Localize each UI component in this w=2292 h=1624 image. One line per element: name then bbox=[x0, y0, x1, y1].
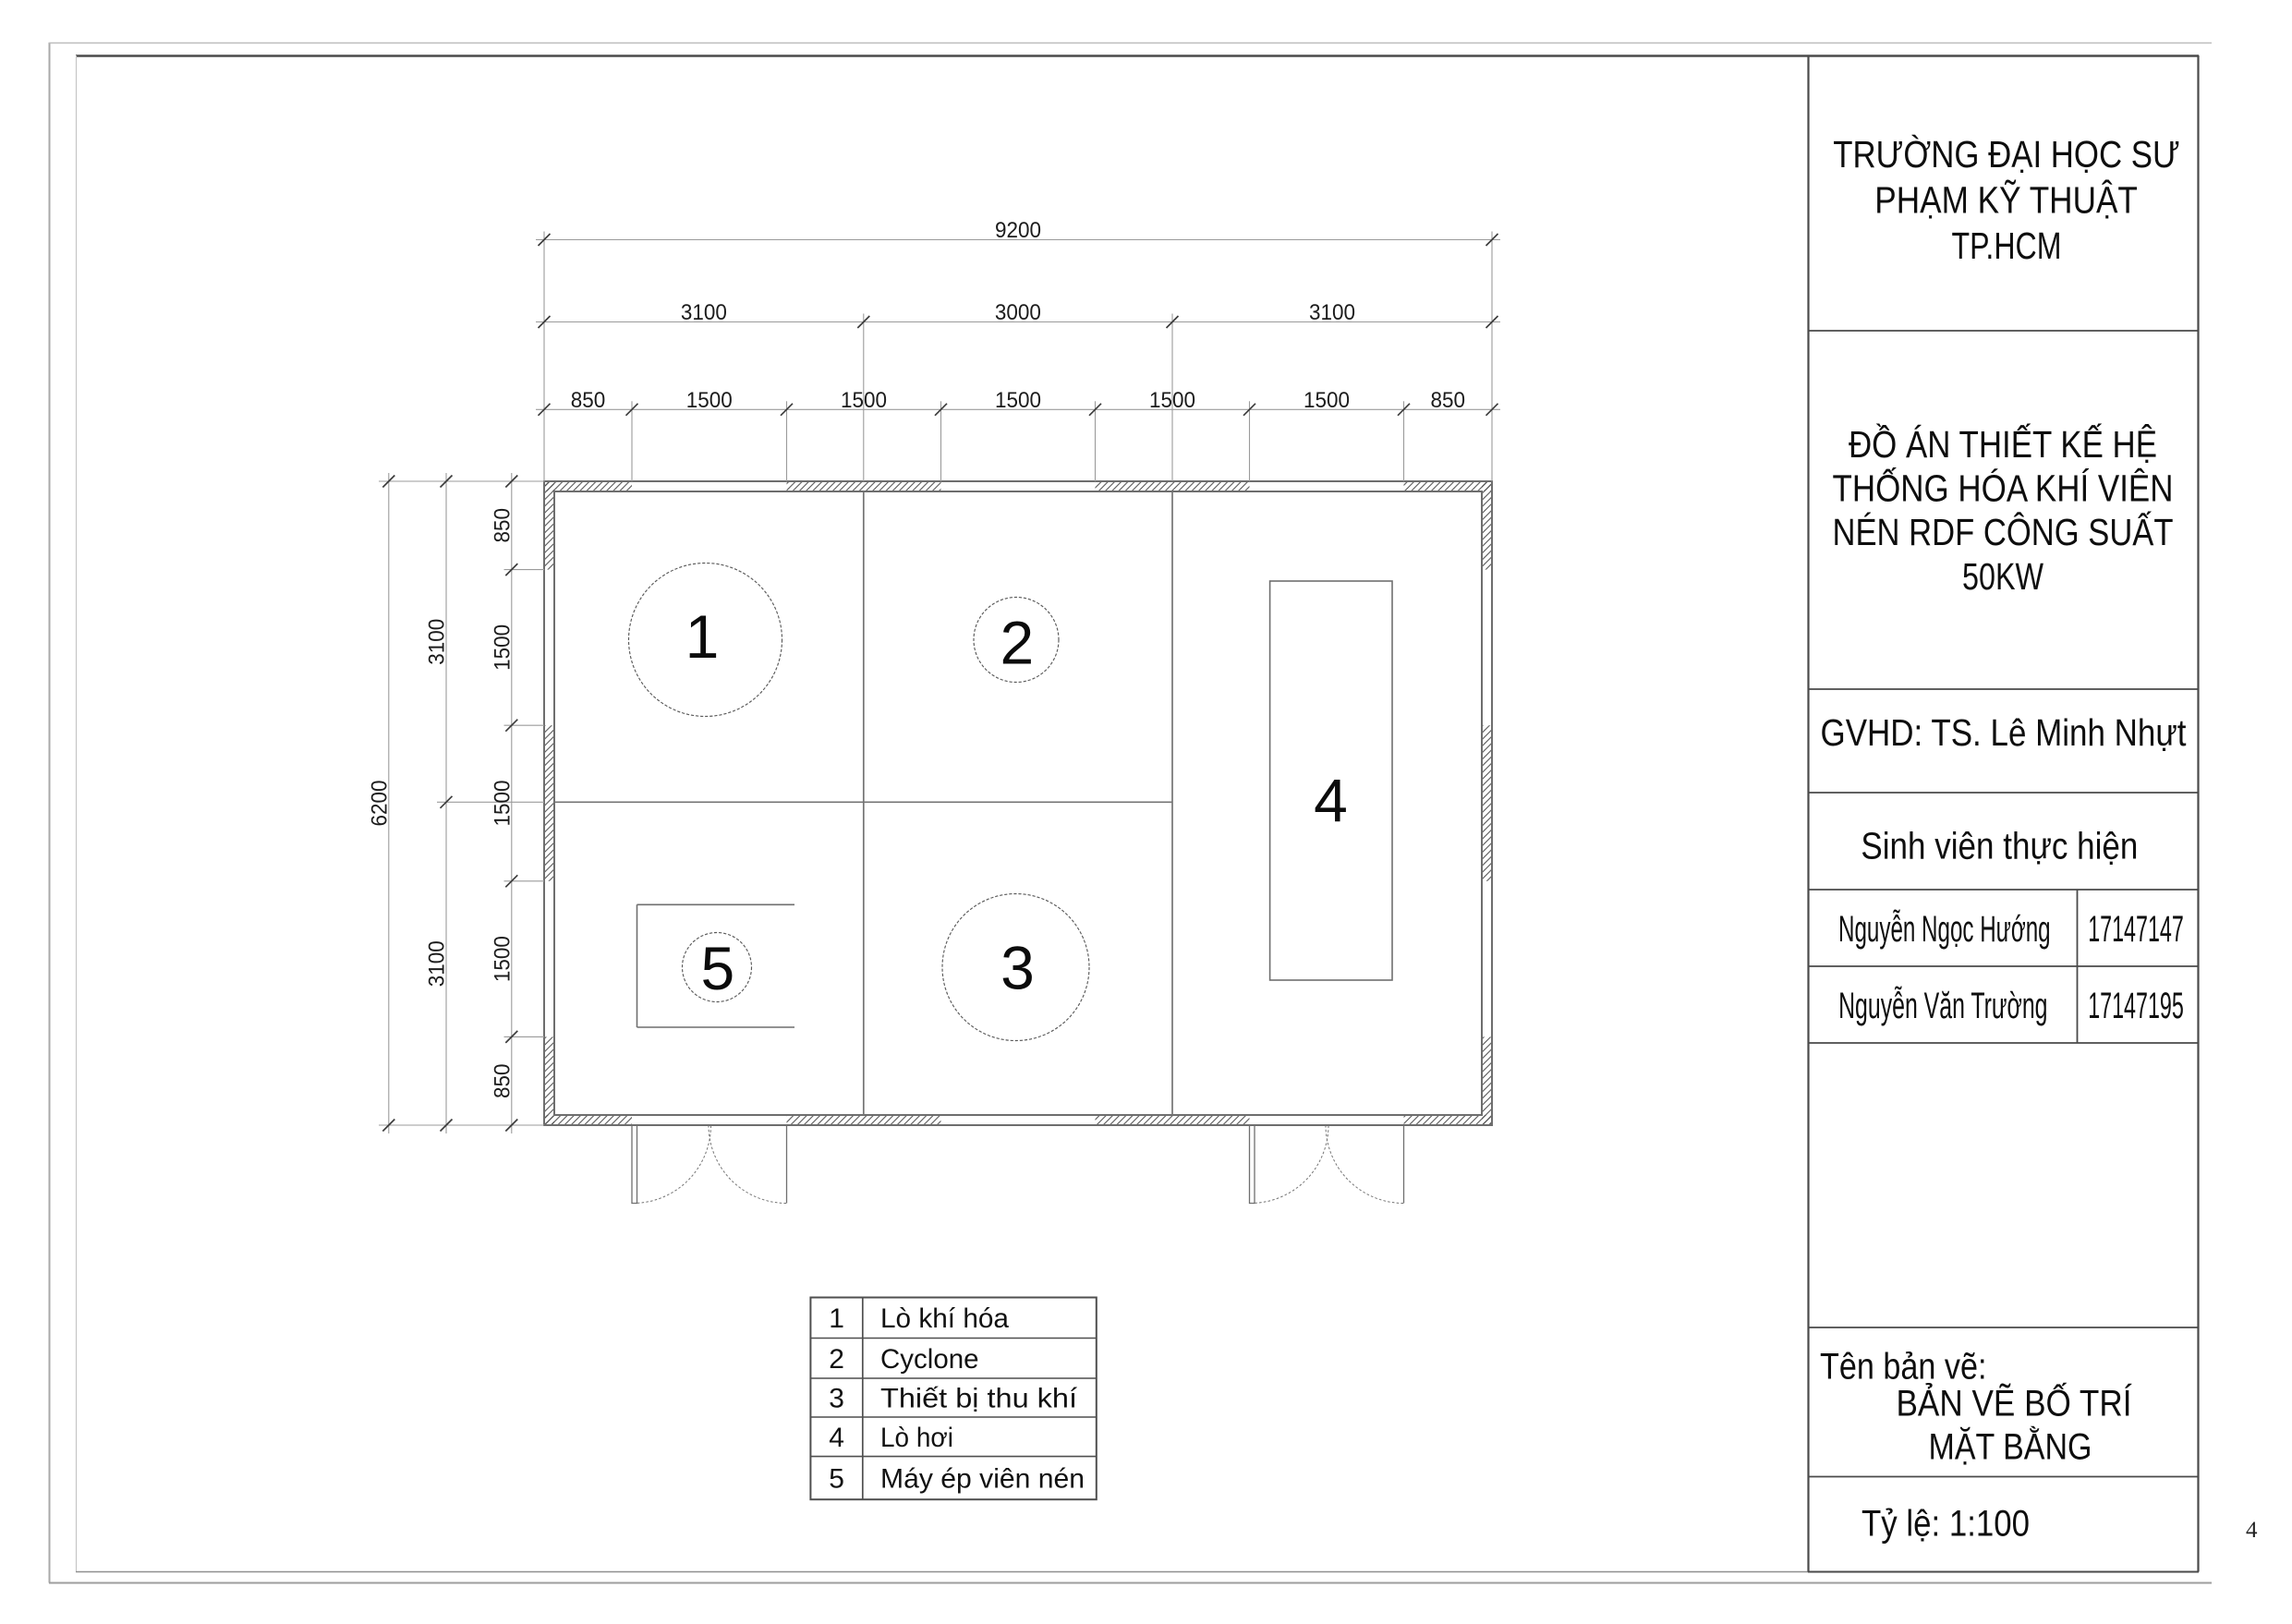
svg-text:3100: 3100 bbox=[425, 940, 450, 987]
svg-text:17147147: 17147147 bbox=[2088, 909, 2184, 950]
svg-text:1: 1 bbox=[685, 602, 720, 671]
svg-text:2: 2 bbox=[1000, 609, 1034, 677]
svg-text:Nguyễn Văn Trường: Nguyễn Văn Trường bbox=[1838, 985, 2047, 1026]
svg-text:850: 850 bbox=[1431, 388, 1466, 413]
svg-text:PHẠM KỸ THUẬT: PHẠM KỸ THUẬT bbox=[1874, 179, 2138, 222]
svg-text:1500: 1500 bbox=[995, 388, 1041, 413]
svg-text:TP.HCM: TP.HCM bbox=[1952, 224, 2062, 267]
svg-text:Lò khí hóa: Lò khí hóa bbox=[880, 1303, 1009, 1334]
svg-text:850: 850 bbox=[490, 508, 515, 543]
svg-text:5: 5 bbox=[829, 1464, 844, 1495]
svg-text:17147195: 17147195 bbox=[2088, 986, 2184, 1026]
svg-text:Cyclone: Cyclone bbox=[880, 1344, 979, 1375]
svg-text:NÉN RDF CÔNG SUẤT: NÉN RDF CÔNG SUẤT bbox=[1833, 511, 2174, 553]
svg-text:1500: 1500 bbox=[686, 388, 733, 413]
svg-text:BẢN VẼ BỐ TRÍ: BẢN VẼ BỐ TRÍ bbox=[1897, 1381, 2133, 1424]
svg-text:1: 1 bbox=[829, 1303, 844, 1334]
svg-text:1500: 1500 bbox=[490, 936, 515, 982]
svg-text:Máy ép viên nén: Máy ép viên nén bbox=[880, 1464, 1085, 1495]
svg-text:Thiết bị thu khí: Thiết bị thu khí bbox=[880, 1384, 1078, 1414]
svg-text:1500: 1500 bbox=[1304, 388, 1350, 413]
svg-text:6200: 6200 bbox=[367, 781, 392, 827]
svg-text:4: 4 bbox=[1314, 767, 1348, 835]
svg-text:1500: 1500 bbox=[1149, 388, 1195, 413]
svg-text:Lò hơi: Lò hơi bbox=[880, 1423, 953, 1453]
svg-text:1500: 1500 bbox=[490, 781, 515, 827]
svg-text:3100: 3100 bbox=[681, 300, 727, 325]
svg-text:Tên bản vẽ:: Tên bản vẽ: bbox=[1820, 1346, 1987, 1387]
svg-text:3: 3 bbox=[829, 1384, 844, 1414]
svg-text:850: 850 bbox=[571, 388, 606, 413]
svg-text:2: 2 bbox=[829, 1344, 844, 1375]
svg-text:4: 4 bbox=[2246, 1518, 2258, 1543]
svg-text:3100: 3100 bbox=[425, 619, 450, 665]
svg-text:5: 5 bbox=[700, 934, 734, 1002]
svg-text:MẶT BẰNG: MẶT BẰNG bbox=[1929, 1424, 2092, 1467]
svg-text:ĐỒ ÁN THIẾT KẾ HỆ: ĐỒ ÁN THIẾT KẾ HỆ bbox=[1849, 423, 2157, 466]
svg-text:3: 3 bbox=[1000, 934, 1035, 1002]
svg-text:Nguyễn Ngọc Hướng: Nguyễn Ngọc Hướng bbox=[1838, 908, 2051, 950]
svg-text:GVHD: TS. Lê Minh Nhựt: GVHD: TS. Lê Minh Nhựt bbox=[1821, 711, 2187, 754]
svg-text:Tỷ lệ: 1:100: Tỷ lệ: 1:100 bbox=[1861, 1503, 2030, 1544]
svg-text:TRƯỜNG ĐẠI HỌC SƯ: TRƯỜNG ĐẠI HỌC SƯ bbox=[1833, 133, 2180, 176]
svg-text:9200: 9200 bbox=[995, 218, 1041, 243]
svg-text:4: 4 bbox=[829, 1423, 844, 1453]
svg-text:1500: 1500 bbox=[841, 388, 887, 413]
svg-text:50KW: 50KW bbox=[1962, 555, 2044, 598]
svg-text:3100: 3100 bbox=[1309, 300, 1355, 325]
svg-text:Sinh viên thực hiện: Sinh viên thực hiện bbox=[1861, 825, 2138, 867]
svg-text:3000: 3000 bbox=[995, 300, 1041, 325]
svg-text:850: 850 bbox=[490, 1063, 515, 1098]
svg-text:1500: 1500 bbox=[490, 624, 515, 671]
svg-text:THỐNG HÓA KHÍ VIÊN: THỐNG HÓA KHÍ VIÊN bbox=[1833, 467, 2174, 510]
